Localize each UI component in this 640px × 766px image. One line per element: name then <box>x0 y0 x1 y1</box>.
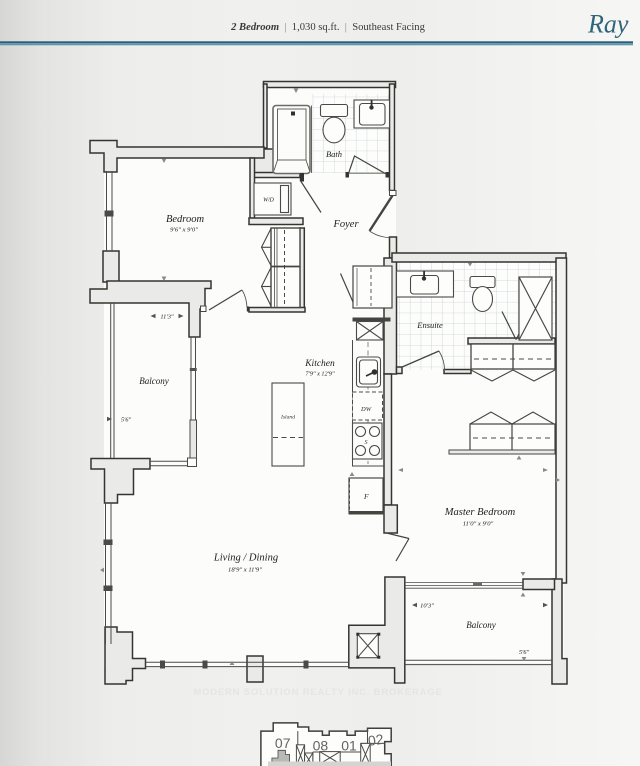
svg-text:Ray: Ray <box>587 10 629 39</box>
svg-text:MODERN SOLUTION REALTY INC. BR: MODERN SOLUTION REALTY INC. BROKERAGE <box>193 687 442 698</box>
svg-text:Bath: Bath <box>326 149 342 159</box>
svg-text:11′3″: 11′3″ <box>160 314 174 321</box>
svg-text:Balcony: Balcony <box>139 376 169 386</box>
svg-text:9′6″ x 9′0″: 9′6″ x 9′0″ <box>170 227 198 234</box>
svg-text:W/D: W/D <box>263 198 274 204</box>
svg-text:Foyer: Foyer <box>332 219 359 230</box>
svg-text:DW: DW <box>360 406 372 413</box>
svg-text:18′9″ x 11′9″: 18′9″ x 11′9″ <box>228 567 262 574</box>
svg-text:Master Bedroom: Master Bedroom <box>444 507 516 518</box>
svg-text:7′9″ x 12′9″: 7′9″ x 12′9″ <box>305 371 335 378</box>
svg-text:2 Bedroom | 1,030 sq.ft. |: 2 Bedroom | 1,030 sq.ft. | Southeast Fac… <box>230 22 425 33</box>
svg-text:07: 07 <box>275 735 291 751</box>
svg-text:Living / Dining: Living / Dining <box>213 553 278 564</box>
svg-text:Balcony: Balcony <box>466 620 496 630</box>
svg-text:F: F <box>363 492 369 501</box>
svg-text:Kitchen: Kitchen <box>304 359 335 369</box>
svg-text:11′0″ x 9′0″: 11′0″ x 9′0″ <box>463 521 494 528</box>
svg-text:Bedroom: Bedroom <box>166 214 205 225</box>
svg-text:01: 01 <box>341 737 357 753</box>
svg-text:10′3″: 10′3″ <box>420 603 434 610</box>
svg-text:08: 08 <box>313 737 329 753</box>
svg-text:Ensuite: Ensuite <box>416 320 443 330</box>
svg-text:Island: Island <box>280 415 295 421</box>
svg-text:5′6″: 5′6″ <box>121 417 132 424</box>
svg-text:5′6″: 5′6″ <box>519 649 530 656</box>
svg-text:S: S <box>365 440 368 446</box>
svg-text:02: 02 <box>367 731 385 749</box>
